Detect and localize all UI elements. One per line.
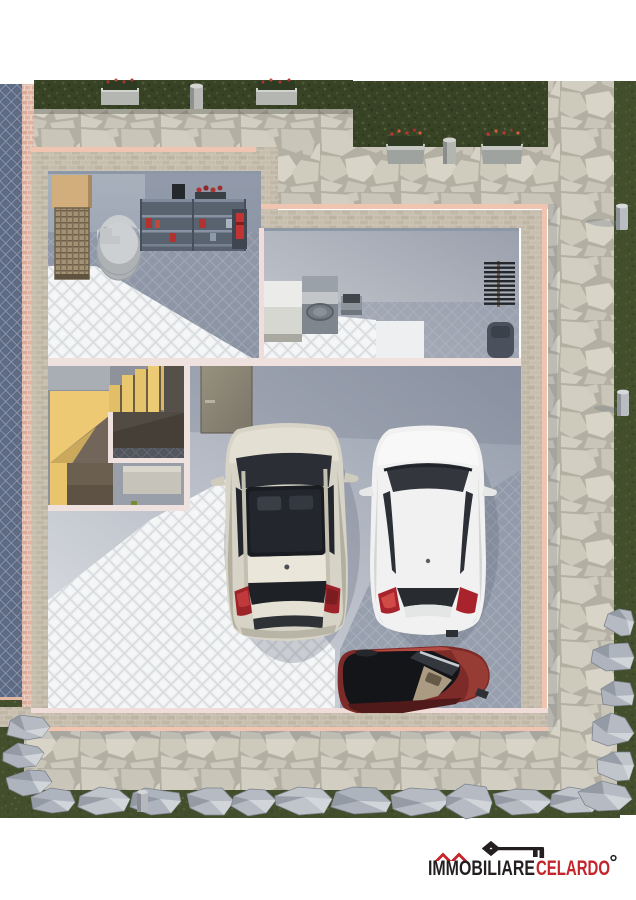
svg-text:CELARDO: CELARDO (536, 856, 610, 880)
svg-text:IMMOBILIARE: IMMOBILIARE (428, 856, 535, 880)
